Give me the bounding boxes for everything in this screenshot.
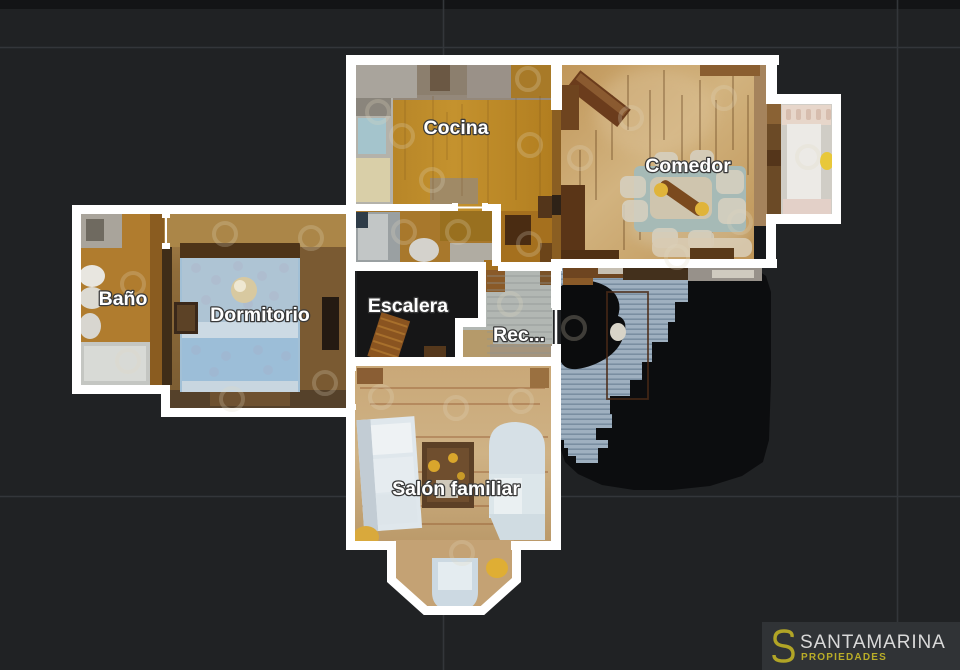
- svg-text:Rec...: Rec...: [493, 324, 545, 346]
- svg-text:Escalera: Escalera: [368, 295, 448, 317]
- svg-text:Salón familiar: Salón familiar: [392, 478, 520, 500]
- svg-text:SANTAMARINA: SANTAMARINA: [800, 632, 946, 653]
- svg-text:Comedor: Comedor: [645, 155, 731, 177]
- svg-text:PROPIEDADES: PROPIEDADES: [801, 652, 887, 663]
- svg-text:Baño: Baño: [99, 288, 148, 310]
- svg-text:Dormitorio: Dormitorio: [210, 304, 310, 326]
- svg-text:Cocina: Cocina: [423, 117, 488, 139]
